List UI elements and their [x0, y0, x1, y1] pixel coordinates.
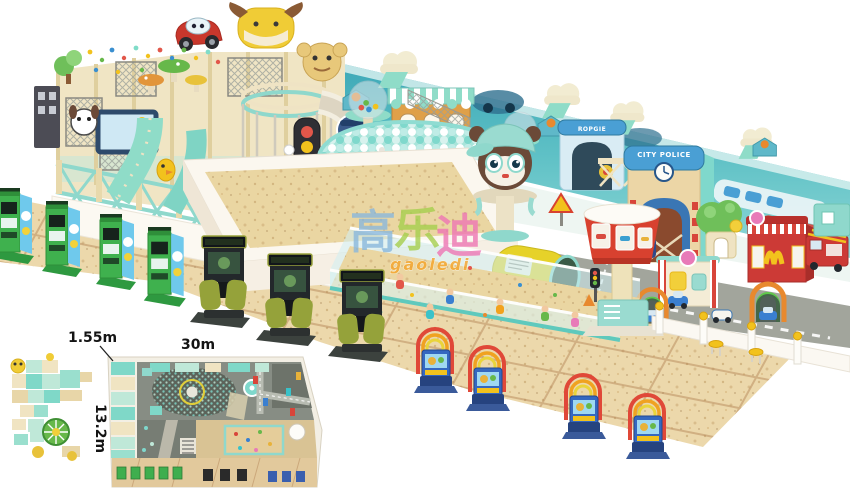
- render-canvas: ROPGIE: [0, 0, 850, 500]
- plan-sand-pit: [225, 426, 283, 454]
- width-dimension-label: 30m: [181, 337, 215, 353]
- fence-post: [794, 332, 802, 364]
- red-car-character: [176, 18, 222, 51]
- chick-character: [157, 159, 175, 181]
- burger-shop: [746, 211, 814, 282]
- floor-plan-left-piece: [11, 353, 92, 461]
- dog-face-panel: [69, 105, 99, 135]
- watermark-char-1: 高: [350, 205, 396, 259]
- banner-text: ROPGIE: [578, 126, 606, 133]
- race-arch-gate: ROPGIE: [558, 120, 626, 190]
- playground-render-image: ROPGIE: [0, 0, 850, 500]
- watermark-char-2: 乐: [394, 203, 440, 257]
- car-wash-arch: [752, 284, 784, 322]
- plan-column: [289, 424, 305, 440]
- right-house: [814, 204, 850, 236]
- green-machine-3: [96, 214, 136, 290]
- floor-plan-main: [108, 357, 322, 487]
- green-machine-4: [144, 227, 186, 307]
- fence-post: [700, 312, 708, 344]
- left-dark-panel: [34, 86, 60, 148]
- watermark-latin: gaoledi: [390, 255, 471, 274]
- cloud-slide: [542, 83, 580, 118]
- fence-post: [656, 302, 664, 334]
- entrance-dimension-label: 1.55m: [68, 330, 117, 346]
- bull-head-character: [229, 2, 303, 48]
- leader-line: [100, 346, 113, 361]
- plan-apron: [112, 458, 317, 487]
- green-machine-2: [42, 201, 82, 277]
- depth-dimension-label: 13.2m: [92, 404, 108, 453]
- city-police-sign: CITY POLICE: [637, 151, 691, 159]
- floor-plan: 1.55m 30m 13.2m: [11, 330, 322, 487]
